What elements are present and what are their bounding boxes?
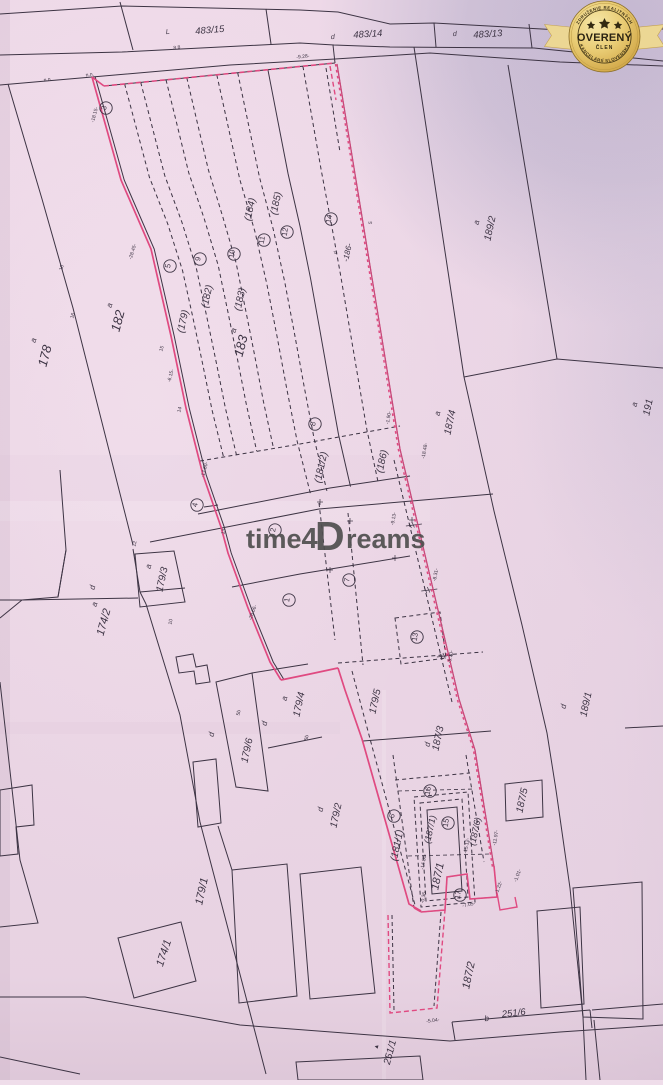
svg-text:483/14: 483/14 [353,28,383,41]
svg-text:ČLEN: ČLEN [596,44,614,51]
svg-text:12: 12 [280,227,290,237]
svg-text:OVERENÝ: OVERENÝ [577,31,633,44]
svg-text:15: 15 [441,818,451,828]
svg-text:D: D [315,513,345,559]
svg-text:8.8: 8.8 [173,45,181,52]
svg-text:483/13: 483/13 [473,28,503,41]
svg-text:13: 13 [410,632,420,642]
svg-text:11: 11 [257,235,267,244]
svg-text:14: 14 [324,214,334,224]
svg-text:17: 17 [453,890,463,900]
svg-text:n.n.: n.n. [85,71,94,78]
svg-text:reams: reams [346,524,426,554]
svg-text:L: L [166,29,171,36]
svg-text:n.n.: n.n. [43,76,52,83]
svg-text:10: 10 [227,249,237,259]
svg-text:16: 16 [423,786,433,796]
svg-text:time4: time4 [246,523,318,555]
